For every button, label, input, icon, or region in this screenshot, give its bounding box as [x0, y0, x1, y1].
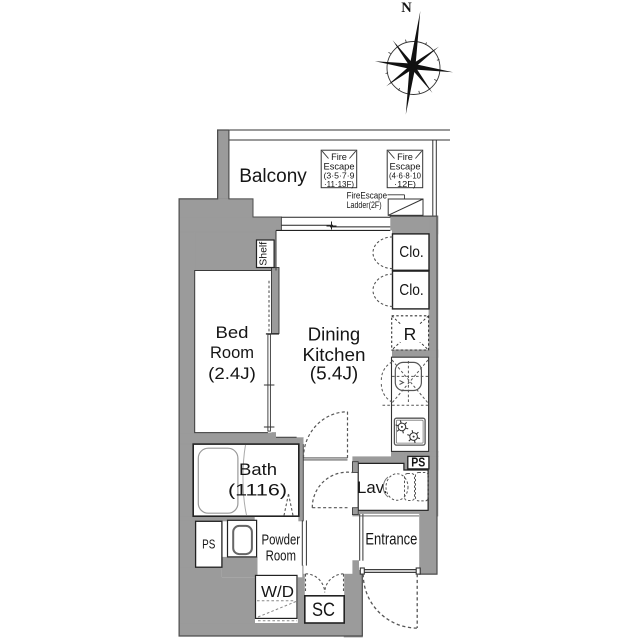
svg-text:Room: Room [210, 344, 254, 362]
svg-text:PS: PS [202, 538, 215, 552]
svg-text:·12F): ·12F) [394, 180, 416, 189]
svg-text:Bed: Bed [216, 324, 249, 342]
svg-text:(1116): (1116) [228, 481, 287, 500]
svg-text:FireEscape: FireEscape [347, 190, 388, 200]
svg-text:Entrance: Entrance [365, 530, 417, 548]
svg-text:(2.4J): (2.4J) [208, 365, 256, 383]
svg-text:Escape: Escape [390, 161, 421, 171]
svg-text:R: R [404, 324, 417, 344]
svg-text:W/D: W/D [261, 584, 294, 601]
svg-text:Bath: Bath [239, 460, 277, 479]
svg-text:Clo.: Clo. [399, 282, 424, 299]
svg-text:Clo.: Clo. [399, 244, 424, 261]
svg-text:Dining: Dining [308, 324, 360, 345]
svg-text:Ladder(2F): Ladder(2F) [347, 200, 382, 210]
svg-text:PS: PS [411, 455, 425, 470]
svg-text:N: N [401, 0, 412, 16]
svg-text:Powder: Powder [262, 533, 301, 549]
svg-text:SC: SC [312, 600, 335, 621]
svg-text:Shelf: Shelf [258, 242, 269, 266]
svg-text:Balcony: Balcony [239, 166, 307, 187]
svg-text:Room: Room [266, 548, 296, 564]
svg-text:(5.4J): (5.4J) [310, 363, 359, 384]
svg-text:Escape: Escape [324, 161, 355, 171]
svg-text:·11·13F): ·11·13F) [324, 180, 354, 189]
